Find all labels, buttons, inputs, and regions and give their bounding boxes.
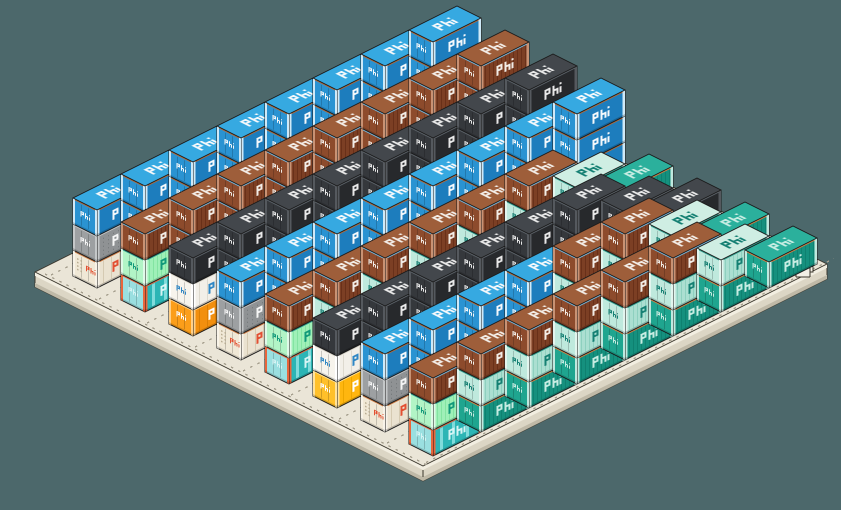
isometric-container-terminal bbox=[0, 0, 841, 510]
container-yard-illustration bbox=[0, 0, 841, 510]
